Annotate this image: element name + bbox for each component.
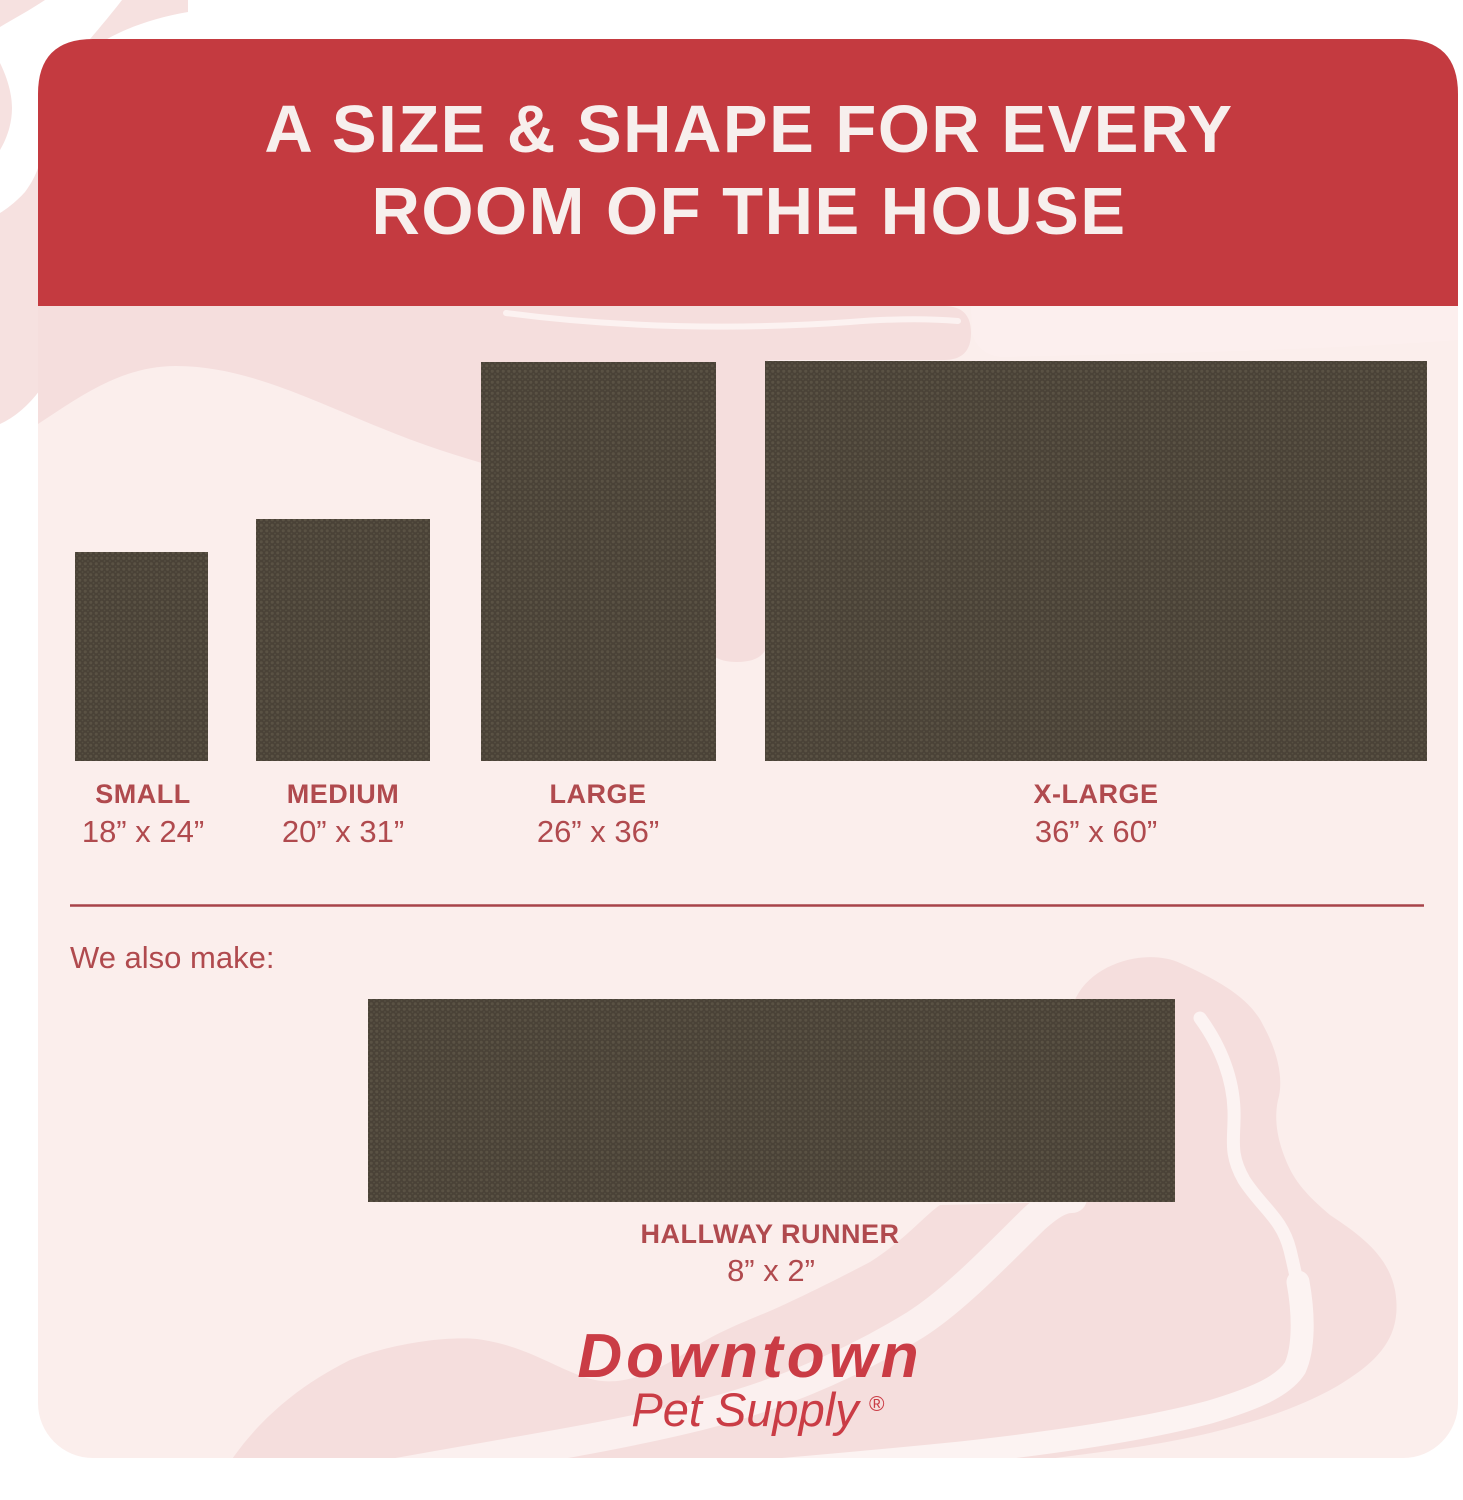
svg-text:ROOM OF THE HOUSE: ROOM OF THE HOUSE: [371, 174, 1126, 249]
svg-text:HALLWAY RUNNER: HALLWAY RUNNER: [640, 1219, 899, 1249]
svg-text:Downtown: Downtown: [577, 1322, 922, 1391]
svg-text:26” x 36”: 26” x 36”: [537, 814, 659, 849]
svg-text:We also make:: We also make:: [70, 940, 274, 975]
svg-text:SMALL: SMALL: [95, 779, 190, 809]
svg-text:36” x 60”: 36” x 60”: [1035, 814, 1157, 849]
svg-text:20” x 31”: 20” x 31”: [282, 814, 404, 849]
svg-text:®: ®: [869, 1393, 885, 1416]
svg-text:18” x 24”: 18” x 24”: [82, 814, 204, 849]
svg-text:8” x 2”: 8” x 2”: [727, 1253, 815, 1288]
svg-text:A SIZE & SHAPE FOR EVERY: A SIZE & SHAPE FOR EVERY: [264, 92, 1233, 167]
svg-text:LARGE: LARGE: [550, 779, 647, 809]
svg-text:X-LARGE: X-LARGE: [1034, 779, 1159, 809]
svg-text:Pet Supply: Pet Supply: [631, 1383, 861, 1436]
svg-text:MEDIUM: MEDIUM: [287, 779, 400, 809]
